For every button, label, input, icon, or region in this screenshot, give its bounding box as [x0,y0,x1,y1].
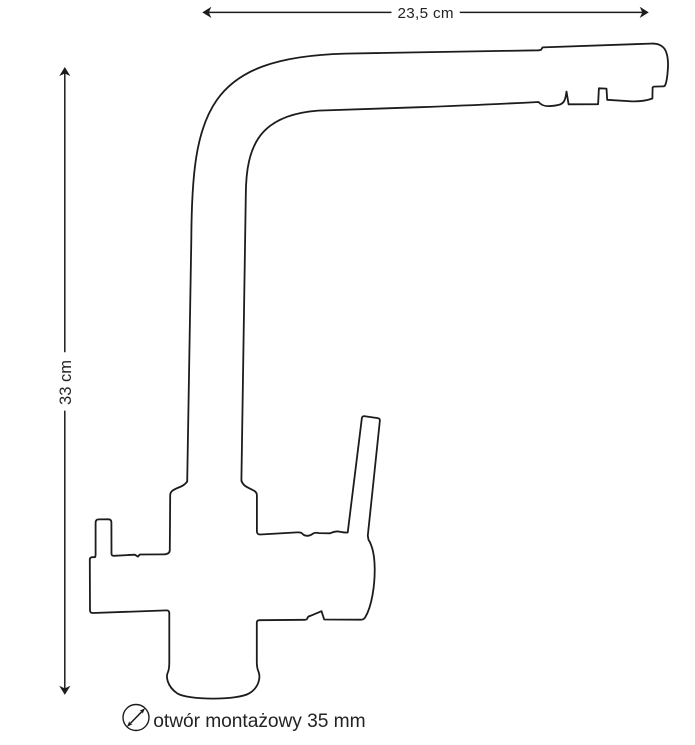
svg-text:23,5 cm: 23,5 cm [397,5,453,22]
svg-text:otwór montażowy 35 mm: otwór montażowy 35 mm [153,711,365,732]
svg-text:33 cm: 33 cm [57,360,75,405]
